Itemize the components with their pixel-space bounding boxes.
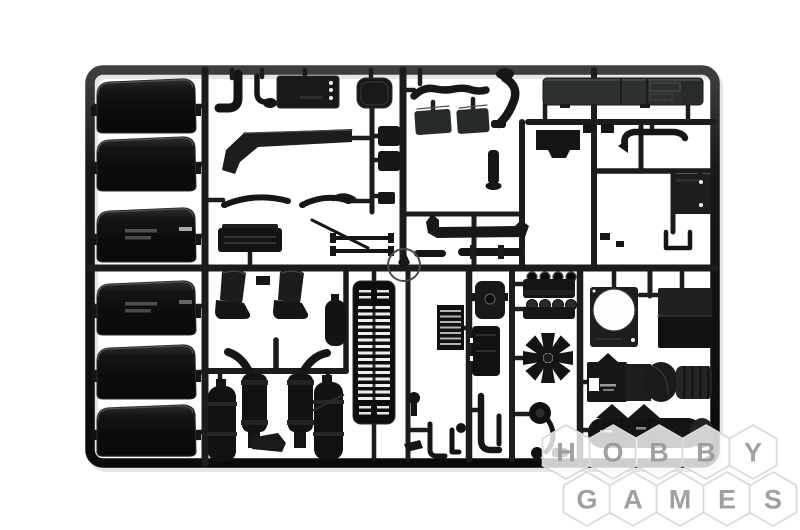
watermark-letter: B [696,438,716,468]
cooling-fan [523,333,573,383]
ribbed-step-box [218,224,282,252]
watermark-letter: B [649,438,669,468]
product-photo: HOBBYGAMES [0,0,800,530]
watermark-letter: M [669,485,692,515]
sleeper-cab-panel [543,78,703,108]
panel-with-holes [277,76,339,108]
mudguard [91,281,201,335]
valve-cover [472,281,508,319]
fan-shroud-panel [590,287,638,347]
sprue-photo: HOBBYGAMES [0,0,800,530]
gearbox-block [470,326,500,376]
vent-panel-with-holes [671,174,711,214]
mudguard [91,208,201,262]
radiator-grille [353,281,395,424]
mudguard [91,345,201,399]
watermark-letter: H [556,438,576,468]
watermark-letter: O [602,438,623,468]
small-radiator [437,305,464,350]
watermark-letter: Y [744,438,762,468]
mudguard [91,79,201,133]
watermark-letter: S [764,485,782,515]
seat-connector [256,276,270,285]
radiator-panel [658,288,712,348]
mudguard [91,137,201,191]
watermark-letter: G [576,485,597,515]
rounded-square-panel [357,78,392,108]
mudguard [91,405,201,456]
cylinder-head-upper [523,272,576,298]
watermark-letter: E [718,485,736,515]
cylinder-head-lower [523,300,577,320]
watermark-letter: A [623,485,643,515]
